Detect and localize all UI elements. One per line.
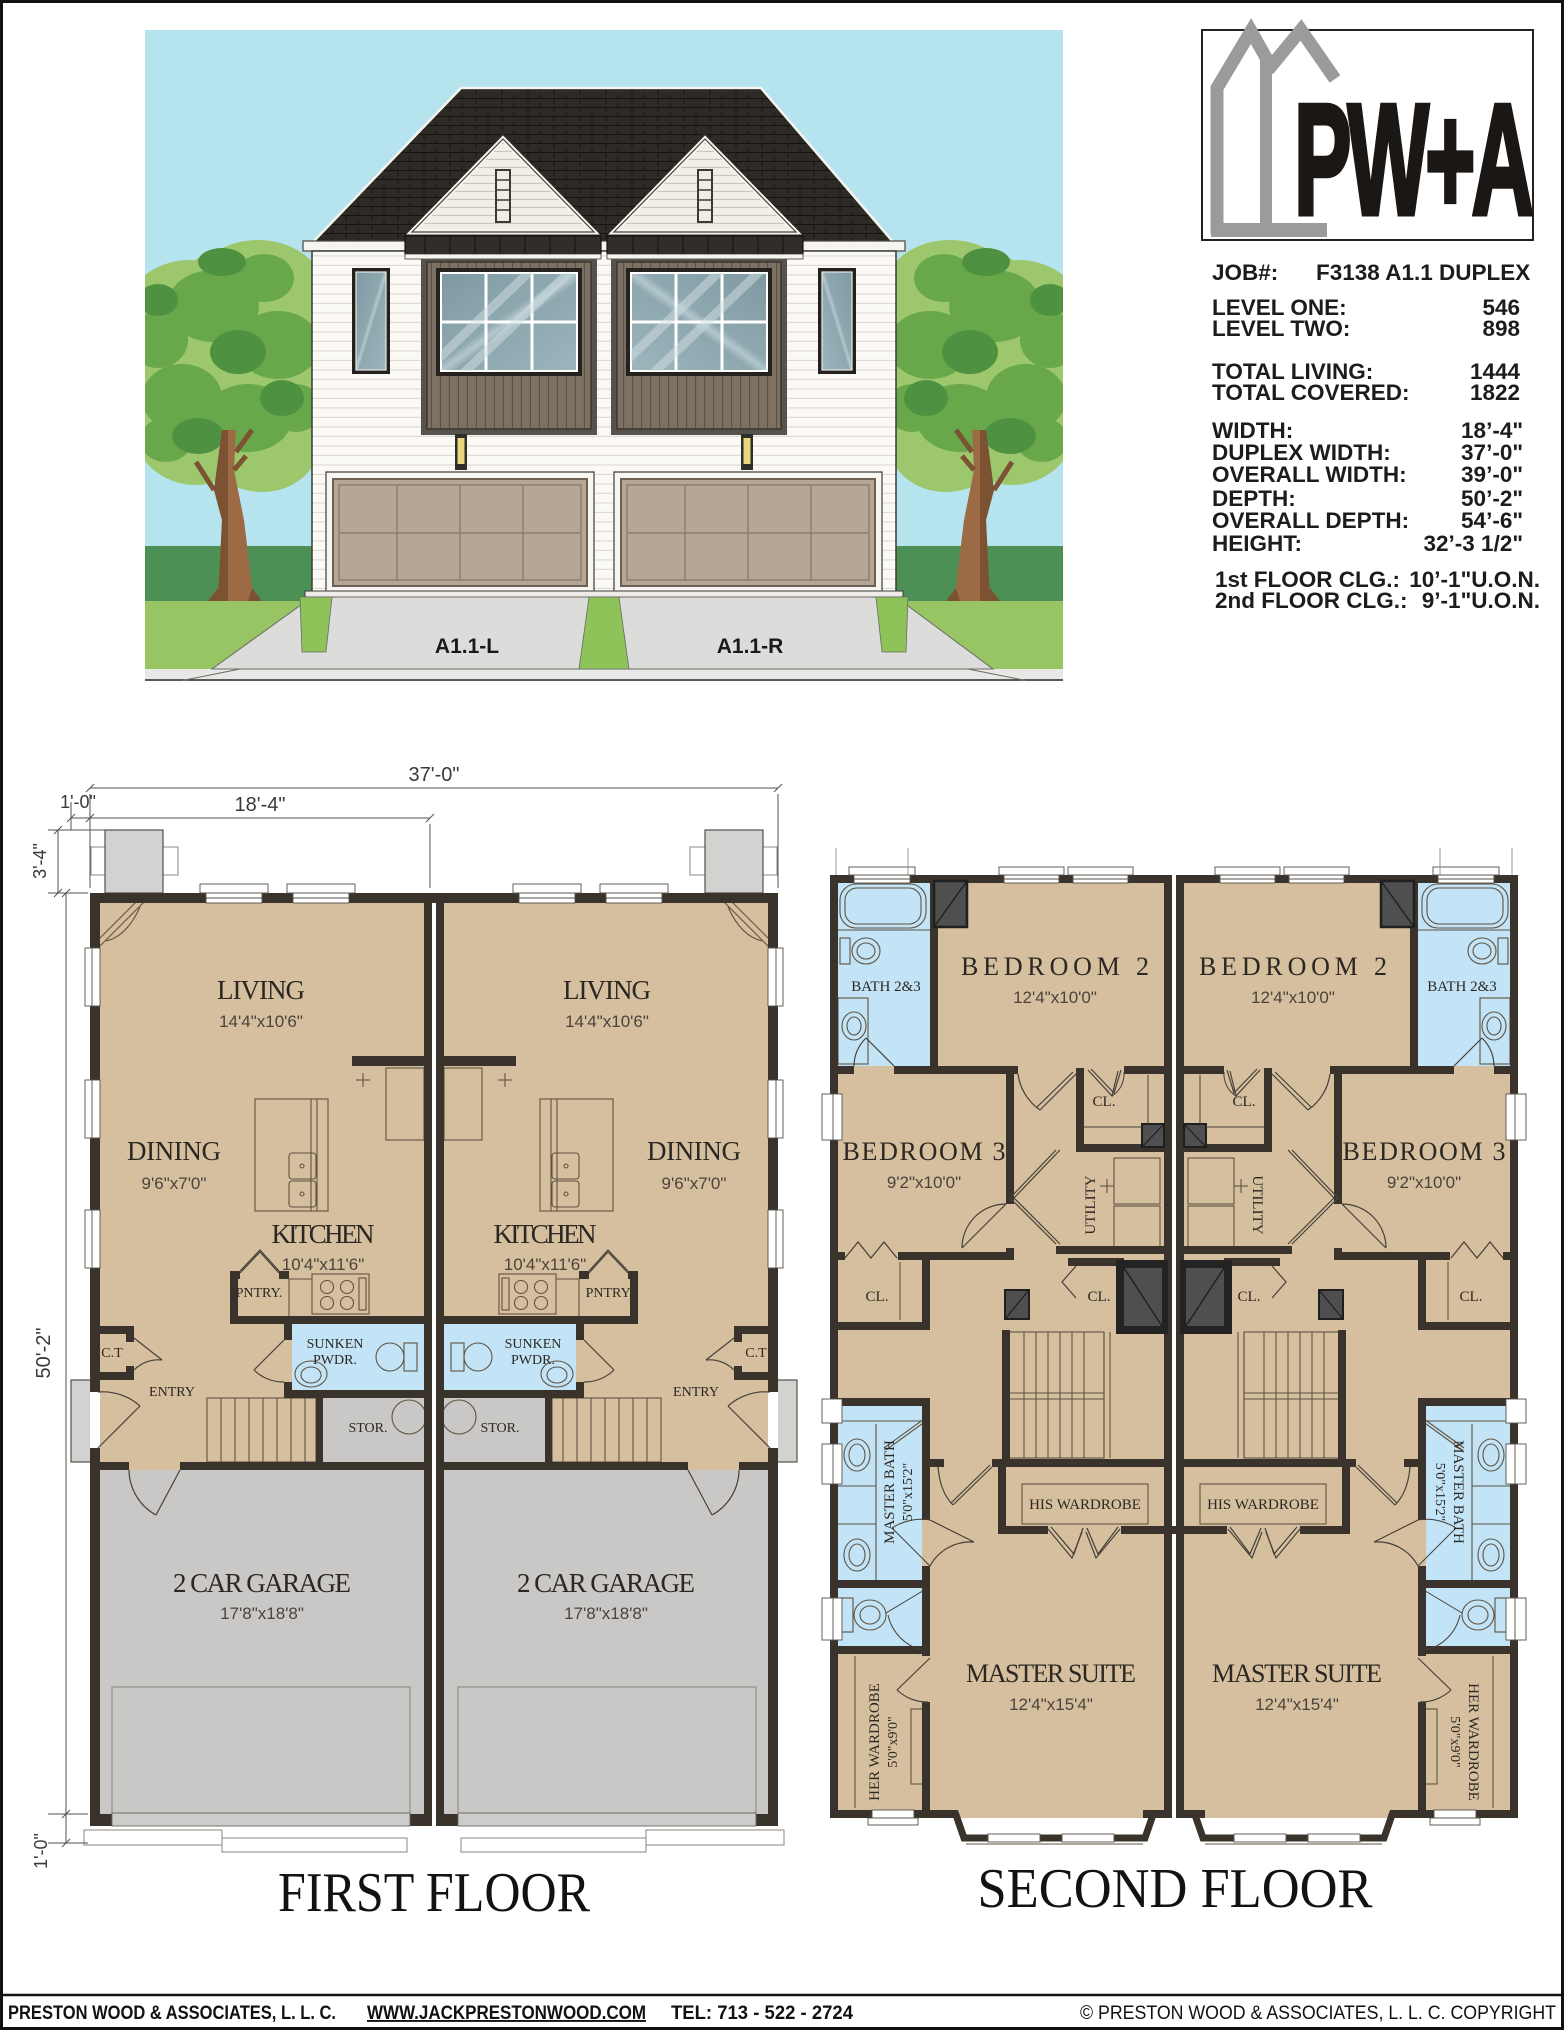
svg-text:CL.: CL. [1238, 1289, 1261, 1305]
svg-text:2 CAR GARAGE: 2 CAR GARAGE [517, 1568, 695, 1598]
svg-text:DINING: DINING [647, 1136, 741, 1166]
svg-text:SUNKEN: SUNKEN [505, 1337, 562, 1352]
svg-text:12'4"x15'4": 12'4"x15'4" [1255, 1695, 1339, 1714]
svg-text:PRESTON WOOD & ASSOCIATES, L.: PRESTON WOOD & ASSOCIATES, L. L. C. [8, 2003, 336, 2024]
svg-text:ENTRY: ENTRY [149, 1385, 195, 1400]
svg-text:17'8"x18'8": 17'8"x18'8" [564, 1604, 648, 1623]
svg-text:UTILITY: UTILITY [1083, 1175, 1099, 1234]
svg-text:1822: 1822 [1470, 380, 1520, 405]
svg-text:LIVING: LIVING [563, 975, 651, 1005]
svg-text:9'2"x10'0": 9'2"x10'0" [1387, 1173, 1461, 1192]
svg-text:BATH 2&3: BATH 2&3 [851, 979, 921, 995]
svg-text:CL.: CL. [1233, 1094, 1256, 1110]
svg-text:MASTER SUITE: MASTER SUITE [1212, 1659, 1382, 1688]
svg-text:OVERALL DEPTH:: OVERALL DEPTH: [1212, 508, 1409, 533]
svg-text:FIRST FLOOR: FIRST FLOOR [278, 1862, 591, 1924]
svg-text:A1.1-R: A1.1-R [717, 635, 784, 658]
svg-text:LEVEL TWO:: LEVEL TWO: [1212, 316, 1350, 341]
svg-text:CL.: CL. [866, 1289, 889, 1305]
svg-text:14'4"x10'6": 14'4"x10'6" [219, 1012, 303, 1031]
svg-text:F3138 A1.1 DUPLEX: F3138 A1.1 DUPLEX [1316, 260, 1530, 285]
svg-text:10'4"x11'6": 10'4"x11'6" [282, 1255, 365, 1274]
svg-text:KITCHEN: KITCHEN [494, 1219, 597, 1249]
svg-text:© PRESTON WOOD & ASSOCIATES, L: © PRESTON WOOD & ASSOCIATES, L. L. C. CO… [1080, 2003, 1556, 2024]
svg-text:HER WARDROBE: HER WARDROBE [1465, 1683, 1481, 1801]
svg-text:5'0"x9'0": 5'0"x9'0" [1447, 1716, 1462, 1767]
svg-text:WWW.JACKPRESTONWOOD.COM: WWW.JACKPRESTONWOOD.COM [367, 2003, 646, 2024]
svg-text:SECOND FLOOR: SECOND FLOOR [978, 1858, 1374, 1920]
svg-text:TEL: 713 - 522 - 2724: TEL: 713 - 522 - 2724 [671, 2003, 853, 2024]
svg-text:KITCHEN: KITCHEN [272, 1219, 375, 1249]
svg-text:1'-0": 1'-0" [60, 792, 96, 812]
svg-text:32’-3 1/2": 32’-3 1/2" [1424, 531, 1523, 556]
svg-text:CL.: CL. [1088, 1289, 1111, 1305]
svg-text:9'6"x7'0": 9'6"x7'0" [142, 1174, 207, 1193]
svg-text:2nd FLOOR CLG.:: 2nd FLOOR CLG.: [1215, 588, 1407, 613]
svg-text:STOR.: STOR. [480, 1421, 519, 1436]
svg-text:54’-6": 54’-6" [1461, 508, 1523, 533]
svg-text:12'4"x15'4": 12'4"x15'4" [1009, 1695, 1093, 1714]
svg-text:CL.: CL. [1460, 1289, 1483, 1305]
svg-text:ENTRY: ENTRY [673, 1385, 719, 1400]
svg-text:A1.1-L: A1.1-L [435, 635, 499, 658]
svg-text:HER WARDROBE: HER WARDROBE [867, 1683, 883, 1801]
svg-text:MASTER BATH: MASTER BATH [1450, 1440, 1466, 1544]
svg-text:MASTER SUITE: MASTER SUITE [966, 1659, 1136, 1688]
svg-text:PWDR.: PWDR. [511, 1353, 555, 1368]
svg-text:PNTRY.: PNTRY. [236, 1286, 283, 1301]
svg-text:5'0"x15'2": 5'0"x15'2" [901, 1463, 916, 1521]
svg-text:898: 898 [1482, 316, 1520, 341]
svg-text:14'4"x10'6": 14'4"x10'6" [565, 1012, 649, 1031]
svg-text:BEDROOM 3: BEDROOM 3 [1343, 1137, 1506, 1166]
svg-text:OVERALL WIDTH:: OVERALL WIDTH: [1212, 462, 1407, 487]
svg-text:C.T: C.T [101, 1346, 123, 1361]
svg-text:5'0"x15'2": 5'0"x15'2" [1432, 1463, 1447, 1521]
svg-text:10'4"x11'6": 10'4"x11'6" [504, 1255, 587, 1274]
svg-text:39’-0": 39’-0" [1461, 462, 1523, 487]
svg-text:2 CAR GARAGE: 2 CAR GARAGE [173, 1568, 351, 1598]
svg-text:DINING: DINING [127, 1136, 221, 1166]
svg-text:STOR.: STOR. [348, 1421, 387, 1436]
svg-text:MASTER BATH: MASTER BATH [882, 1440, 898, 1544]
svg-text:PWDR.: PWDR. [313, 1353, 357, 1368]
svg-text:HEIGHT:: HEIGHT: [1212, 531, 1302, 556]
svg-text:PW+A: PW+A [1294, 72, 1532, 248]
svg-text:17'8"x18'8": 17'8"x18'8" [220, 1604, 304, 1623]
svg-text:3'-4": 3'-4" [30, 843, 50, 879]
svg-text:CL.: CL. [1093, 1094, 1116, 1110]
svg-text:12'4"x10'0": 12'4"x10'0" [1251, 988, 1335, 1007]
svg-text:SUNKEN: SUNKEN [307, 1337, 364, 1352]
svg-text:BATH 2&3: BATH 2&3 [1427, 979, 1497, 995]
svg-text:JOB#:: JOB#: [1212, 260, 1278, 285]
svg-text:C.T: C.T [745, 1346, 767, 1361]
svg-text:HIS WARDROBE: HIS WARDROBE [1207, 1497, 1319, 1513]
svg-text:12'4"x10'0": 12'4"x10'0" [1013, 988, 1097, 1007]
svg-text:37'-0": 37'-0" [409, 764, 460, 786]
svg-text:UTILITY: UTILITY [1249, 1175, 1265, 1234]
svg-text:TOTAL COVERED:: TOTAL COVERED: [1212, 380, 1410, 405]
svg-text:1'-0": 1'-0" [31, 1833, 51, 1869]
svg-text:5'0"x9'0": 5'0"x9'0" [886, 1716, 901, 1767]
svg-text:PNTRY.: PNTRY. [586, 1286, 633, 1301]
svg-text:HIS WARDROBE: HIS WARDROBE [1029, 1497, 1141, 1513]
svg-text:9'2"x10'0": 9'2"x10'0" [887, 1173, 961, 1192]
svg-text:9’-1"U.O.N.: 9’-1"U.O.N. [1422, 588, 1540, 613]
svg-text:LIVING: LIVING [217, 975, 305, 1005]
svg-text:9'6"x7'0": 9'6"x7'0" [662, 1174, 727, 1193]
svg-text:18'-4": 18'-4" [235, 794, 286, 816]
svg-text:BEDROOM 3: BEDROOM 3 [843, 1137, 1006, 1166]
svg-text:50'-2": 50'-2" [33, 1328, 55, 1379]
